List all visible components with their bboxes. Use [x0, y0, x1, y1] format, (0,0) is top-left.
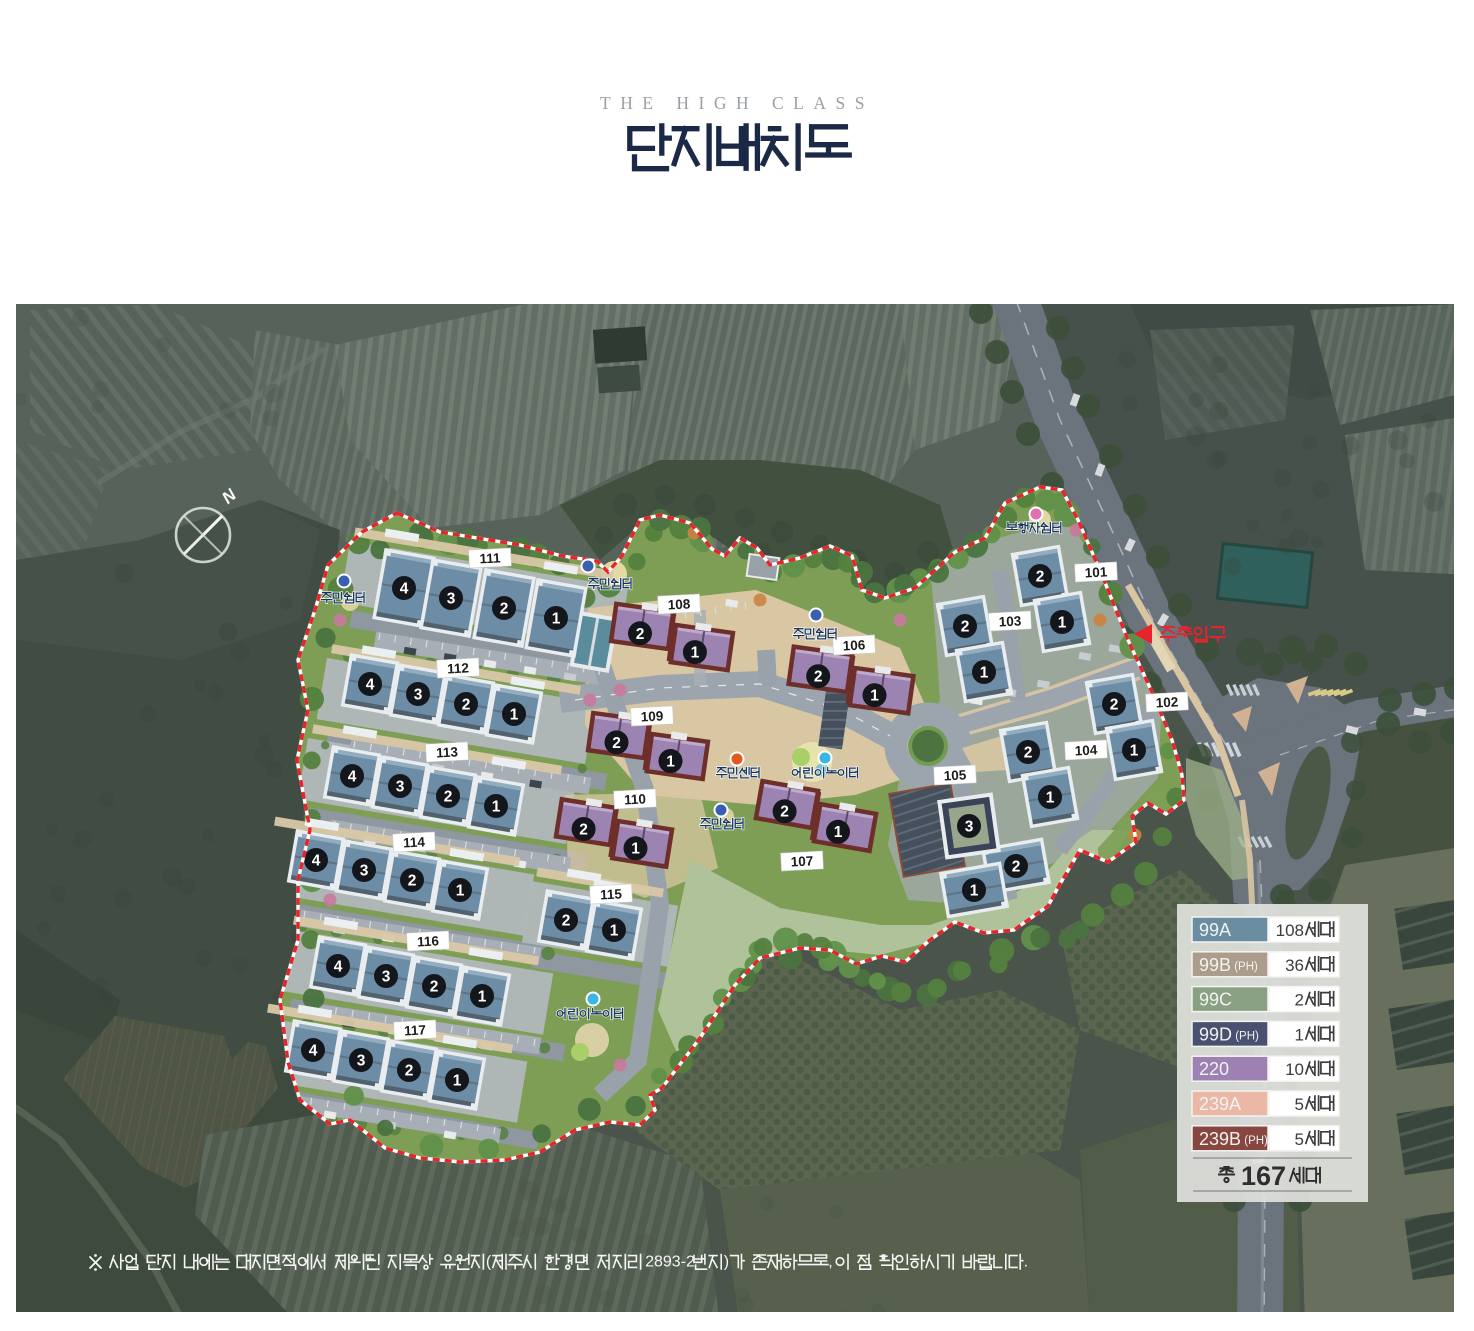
svg-text:1: 1	[691, 645, 700, 662]
svg-text:1: 1	[1058, 614, 1067, 631]
svg-text:1: 1	[510, 706, 519, 723]
svg-text:115: 115	[600, 886, 623, 902]
svg-text:1: 1	[1130, 742, 1139, 759]
svg-text:109: 109	[640, 708, 663, 724]
svg-text:2: 2	[612, 735, 621, 752]
svg-text:114: 114	[403, 834, 426, 850]
svg-text:): )	[724, 1254, 729, 1271]
svg-text:4: 4	[312, 852, 321, 869]
svg-text:2: 2	[780, 804, 789, 821]
svg-text:101: 101	[1084, 564, 1108, 580]
svg-text:3: 3	[965, 818, 974, 835]
svg-text:1: 1	[1046, 789, 1055, 806]
svg-text:4: 4	[348, 768, 357, 785]
svg-text:1: 1	[492, 798, 501, 815]
svg-text:2: 2	[814, 669, 823, 686]
svg-text:,: ,	[828, 1254, 832, 1271]
svg-text:1: 1	[980, 664, 989, 681]
svg-text:2: 2	[1295, 991, 1304, 1010]
svg-text:99A: 99A	[1199, 920, 1231, 940]
svg-text:3: 3	[360, 862, 369, 879]
svg-text:108: 108	[1276, 921, 1304, 940]
svg-text:1: 1	[631, 841, 640, 858]
svg-text:2: 2	[1024, 744, 1033, 761]
svg-text:4: 4	[334, 958, 343, 975]
svg-text:107: 107	[790, 853, 813, 869]
svg-text:1: 1	[610, 922, 619, 939]
svg-text:1: 1	[1295, 1025, 1304, 1044]
svg-text:106: 106	[842, 637, 866, 653]
svg-text:117: 117	[404, 1022, 427, 1038]
svg-text:167: 167	[1241, 1161, 1286, 1191]
svg-text:2: 2	[462, 696, 471, 713]
svg-text:2: 2	[408, 872, 417, 889]
svg-text:36: 36	[1285, 956, 1304, 975]
svg-text:4: 4	[366, 676, 375, 693]
svg-text:2: 2	[562, 912, 571, 929]
svg-text:4: 4	[309, 1042, 318, 1059]
svg-text:108: 108	[667, 596, 691, 612]
svg-text:2: 2	[636, 626, 645, 643]
svg-text:3: 3	[357, 1052, 366, 1069]
svg-text:3: 3	[447, 590, 456, 607]
svg-text:104: 104	[1074, 742, 1098, 758]
svg-text:1: 1	[478, 988, 487, 1005]
svg-text:3: 3	[396, 778, 405, 795]
svg-text:113: 113	[436, 744, 459, 760]
svg-text:2: 2	[1110, 696, 1119, 713]
svg-text:THE HIGH CLASS: THE HIGH CLASS	[600, 93, 874, 113]
svg-text:105: 105	[943, 767, 967, 783]
svg-text:1: 1	[456, 882, 465, 899]
svg-text:239A: 239A	[1199, 1094, 1241, 1114]
svg-text:111: 111	[479, 550, 501, 566]
svg-text:102: 102	[1155, 694, 1178, 710]
svg-text:1: 1	[453, 1072, 462, 1089]
svg-text:220: 220	[1199, 1059, 1229, 1079]
svg-text:2: 2	[579, 822, 588, 839]
svg-text:(: (	[486, 1254, 492, 1271]
svg-text:2: 2	[405, 1062, 414, 1079]
svg-text:.: .	[1024, 1254, 1028, 1271]
svg-text:1: 1	[870, 688, 879, 705]
svg-text:2: 2	[444, 788, 453, 805]
svg-text:1: 1	[666, 754, 675, 771]
svg-text:2: 2	[1036, 568, 1045, 585]
svg-text:1: 1	[834, 824, 843, 841]
svg-text:99C: 99C	[1199, 990, 1232, 1010]
svg-text:116: 116	[417, 933, 440, 949]
svg-text:2: 2	[961, 618, 970, 635]
svg-text:2893-2: 2893-2	[645, 1254, 695, 1271]
svg-text:3: 3	[414, 686, 423, 703]
svg-text:3: 3	[382, 968, 391, 985]
svg-text:103: 103	[998, 613, 1022, 629]
svg-text:2: 2	[1012, 858, 1021, 875]
svg-text:112: 112	[447, 660, 470, 676]
svg-text:110: 110	[624, 791, 647, 807]
svg-text:1: 1	[552, 610, 561, 627]
svg-text:2: 2	[500, 600, 509, 617]
svg-text:5: 5	[1295, 1095, 1304, 1114]
svg-text:1: 1	[970, 882, 979, 899]
svg-text:10: 10	[1285, 1060, 1304, 1079]
svg-text:4: 4	[400, 580, 409, 597]
svg-text:5: 5	[1295, 1130, 1304, 1149]
svg-text:2: 2	[430, 978, 439, 995]
